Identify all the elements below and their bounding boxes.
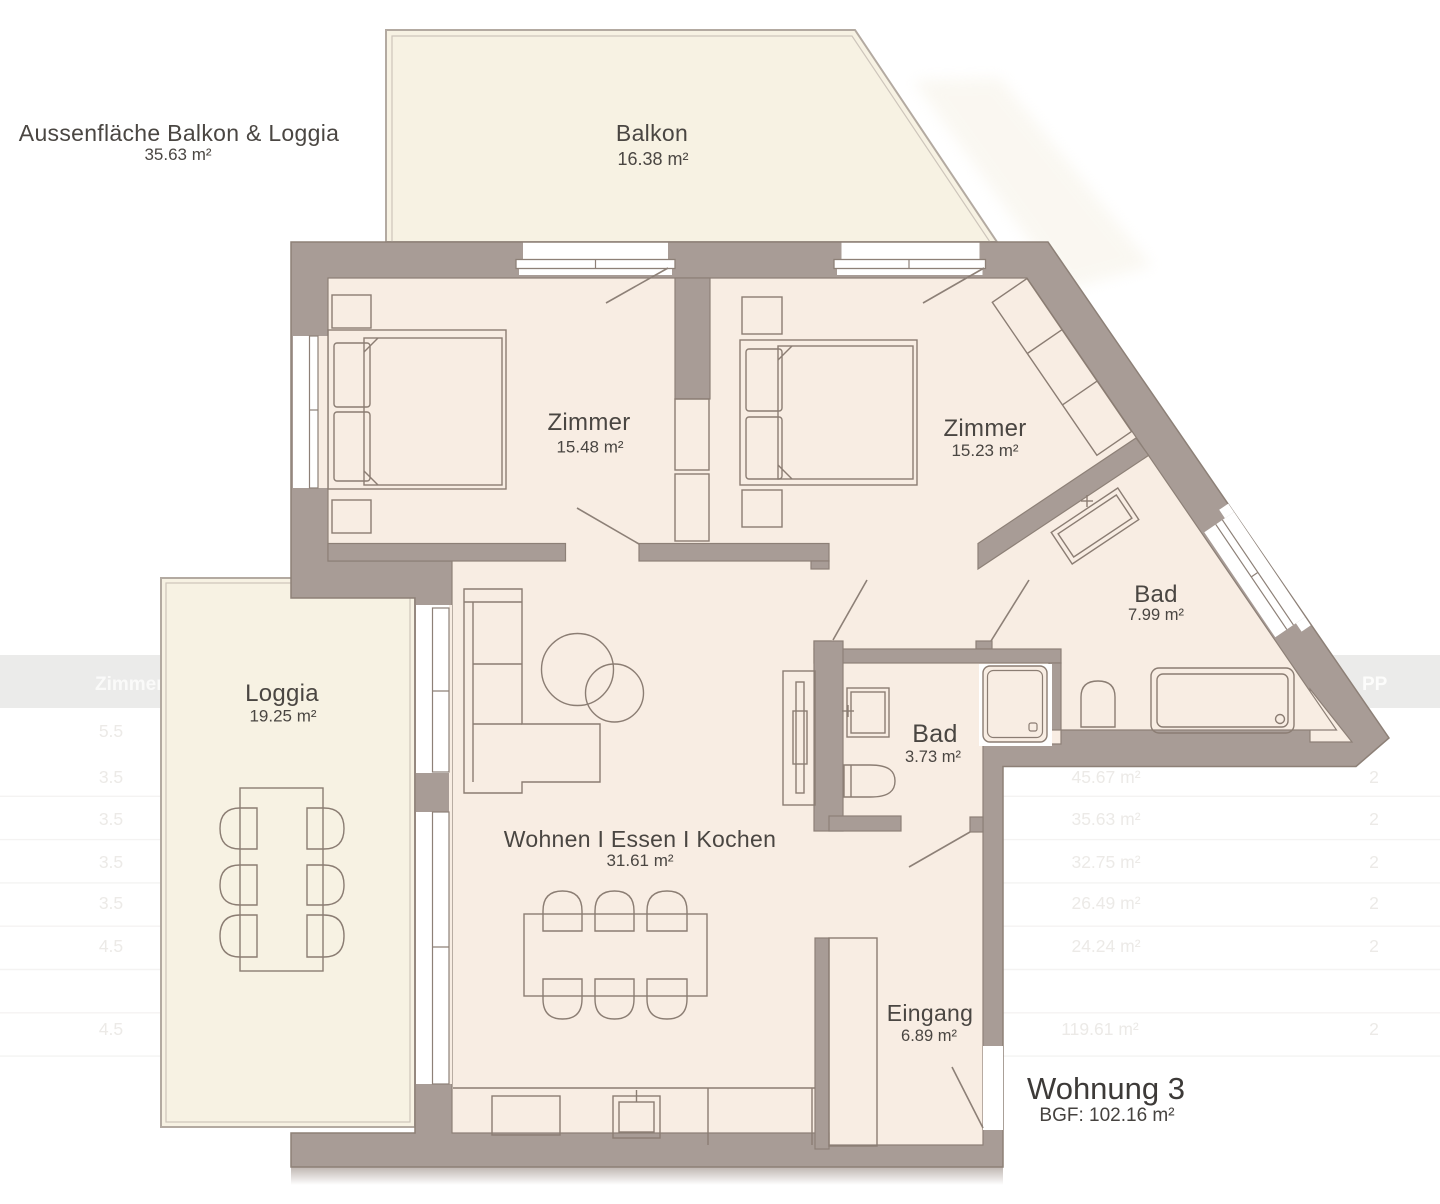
- svg-text:Zimmer: Zimmer: [943, 415, 1026, 442]
- svg-text:4.5: 4.5: [99, 936, 123, 956]
- svg-text:Bad: Bad: [1134, 581, 1178, 608]
- svg-text:4.5: 4.5: [99, 1019, 123, 1039]
- svg-text:6.89 m²: 6.89 m²: [901, 1027, 957, 1045]
- svg-text:2: 2: [1369, 852, 1379, 872]
- svg-text:Zimmer: Zimmer: [547, 409, 630, 436]
- svg-text:BGF: 102.16 m²: BGF: 102.16 m²: [1039, 1105, 1174, 1126]
- svg-text:Wohnen I Essen I Kochen: Wohnen I Essen I Kochen: [504, 826, 776, 852]
- svg-text:2: 2: [1369, 936, 1379, 956]
- svg-text:7.99 m²: 7.99 m²: [1128, 606, 1184, 624]
- svg-text:Balkon: Balkon: [616, 120, 688, 146]
- svg-text:2: 2: [1369, 809, 1379, 829]
- svg-text:24.24 m²: 24.24 m²: [1071, 936, 1140, 956]
- svg-text:Wohnung 3: Wohnung 3: [1027, 1071, 1185, 1106]
- svg-text:2: 2: [1369, 1019, 1379, 1039]
- svg-text:2: 2: [1369, 893, 1379, 913]
- svg-text:PP: PP: [1362, 674, 1388, 695]
- svg-text:35.63 m²: 35.63 m²: [144, 145, 211, 164]
- svg-text:2: 2: [1369, 767, 1379, 787]
- svg-text:26.49 m²: 26.49 m²: [1071, 893, 1140, 913]
- svg-text:Bad: Bad: [912, 720, 957, 748]
- svg-text:16.38 m²: 16.38 m²: [617, 149, 688, 169]
- svg-text:3.5: 3.5: [99, 809, 123, 829]
- svg-text:32.75 m²: 32.75 m²: [1071, 852, 1140, 872]
- svg-text:31.61 m²: 31.61 m²: [606, 851, 673, 870]
- svg-text:3.5: 3.5: [99, 893, 123, 913]
- svg-text:5.5: 5.5: [99, 721, 123, 741]
- svg-text:Eingang: Eingang: [887, 1000, 974, 1026]
- svg-text:Loggia: Loggia: [245, 680, 319, 707]
- svg-text:19.25 m²: 19.25 m²: [249, 707, 316, 726]
- svg-text:3.5: 3.5: [99, 852, 123, 872]
- svg-text:15.23 m²: 15.23 m²: [951, 441, 1018, 460]
- svg-text:3.5: 3.5: [99, 767, 123, 787]
- svg-text:119.61 m²: 119.61 m²: [1061, 1019, 1139, 1039]
- svg-text:45.67 m²: 45.67 m²: [1071, 767, 1140, 787]
- svg-text:3.73 m²: 3.73 m²: [905, 748, 961, 766]
- svg-text:15.48 m²: 15.48 m²: [556, 438, 623, 457]
- svg-text:Zimmer: Zimmer: [95, 674, 164, 695]
- svg-text:35.63 m²: 35.63 m²: [1071, 809, 1140, 829]
- svg-text:Aussenfläche Balkon & Loggia: Aussenfläche Balkon & Loggia: [19, 120, 339, 146]
